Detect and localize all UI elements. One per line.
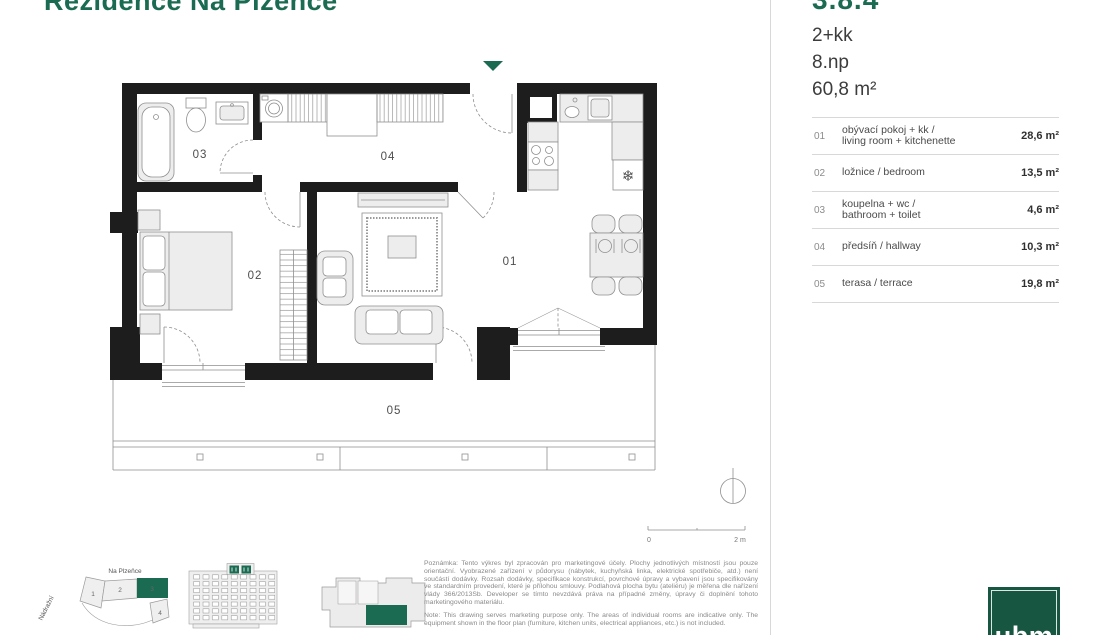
scale-max: 2 m — [734, 537, 746, 544]
toilet — [186, 98, 206, 132]
brochure-page: Rezidence Na Plzeňce 3.8.4 2+kk 8.np 60,… — [0, 0, 1111, 635]
floor-plan: ❄ — [105, 50, 765, 550]
label-terrace: 05 — [387, 405, 402, 417]
bedroom-french-window — [162, 327, 245, 387]
highlighted-unit-footprint — [366, 605, 407, 625]
room-area: 19,8 m² — [1021, 278, 1059, 290]
scale-bar: 0 2 m — [647, 526, 746, 544]
room-number: 05 — [814, 279, 842, 290]
room-name: koupelna + wc / bathroom + toilet — [842, 195, 1027, 226]
bathtub — [138, 103, 174, 181]
unit-floor: 8.np — [812, 49, 876, 76]
stove — [528, 122, 558, 190]
floor-location-plan — [315, 570, 431, 632]
note-czech: Poznámka: Tento výkres byl zpracován pro… — [424, 560, 758, 607]
disclaimer-notes: Poznámka: Tento výkres byl zpracován pro… — [424, 560, 758, 632]
svg-text:2: 2 — [118, 587, 122, 594]
room-number: 03 — [814, 205, 842, 216]
table-row: 02 ložnice / bedroom 13,5 m² — [812, 155, 1059, 192]
room-area: 4,6 m² — [1027, 204, 1059, 216]
room-area: 28,6 m² — [1021, 130, 1059, 142]
room-number: 04 — [814, 242, 842, 253]
bed — [140, 232, 232, 310]
nightstand — [138, 210, 160, 230]
site-map: Na Plzeňce Nádražní 1 2 3 4 — [36, 556, 174, 635]
washing-machine — [260, 94, 288, 122]
armchair — [317, 251, 353, 305]
sideboard — [358, 193, 448, 207]
bathroom-fixtures — [138, 98, 248, 181]
fridge-icon: ❄ — [613, 160, 643, 190]
rug — [362, 213, 442, 296]
entrance-arrow-icon — [483, 61, 503, 71]
bedroom-wardrobe — [280, 250, 307, 360]
svg-text:1: 1 — [91, 591, 95, 598]
unit-total-area: 60,8 m² — [812, 76, 876, 103]
highlighted-unit-window — [230, 566, 240, 574]
highlighted-unit-window — [242, 566, 252, 574]
table-row: 05 terasa / terrace 19,8 m² — [812, 266, 1059, 303]
room-number: 01 — [814, 131, 842, 142]
unit-layout: 2+kk — [812, 22, 876, 49]
washbasin — [216, 102, 248, 124]
room-area: 13,5 m² — [1021, 167, 1059, 179]
dining-set — [590, 215, 643, 295]
note-english: Note: This drawing serves marketing purp… — [424, 612, 758, 628]
shaft — [530, 97, 552, 118]
svg-text:4: 4 — [158, 610, 162, 617]
label-bedroom: 02 — [248, 270, 263, 282]
table-row: 01 obývací pokoj + kk / living room + ki… — [812, 118, 1059, 155]
bedroom-furniture — [138, 210, 307, 360]
svg-text:3: 3 — [150, 586, 154, 593]
room-area: 10,3 m² — [1021, 241, 1059, 253]
unit-number: 3.8.4 — [812, 0, 879, 15]
room-table: 01 obývací pokoj + kk / living room + ki… — [812, 117, 1059, 303]
scale-zero: 0 — [647, 537, 651, 544]
table-row: 03 koupelna + wc / bathroom + toilet 4,6… — [812, 192, 1059, 229]
coffee-table — [388, 236, 416, 258]
project-title: Rezidence Na Plzeňce — [44, 0, 338, 16]
building-elevation — [183, 560, 288, 634]
table-row: 04 předsíň / hallway 10,3 m² — [812, 229, 1059, 266]
living-furniture — [317, 193, 643, 344]
label-living: 01 — [503, 256, 518, 268]
room-name: předsíň / hallway — [842, 237, 1021, 257]
svg-text:❄: ❄ — [622, 168, 635, 185]
label-hallway: 04 — [381, 151, 396, 163]
nightstand — [140, 314, 160, 334]
room-name: terasa / terrace — [842, 274, 1021, 294]
street-name-left: Nádražní — [38, 595, 56, 622]
room-number: 02 — [814, 168, 842, 179]
vertical-divider — [770, 0, 771, 635]
room-name: ložnice / bedroom — [842, 163, 1021, 183]
label-bathroom: 03 — [193, 149, 208, 161]
hallway-fixtures — [260, 94, 443, 136]
north-indicator-icon — [721, 468, 746, 504]
unit-specs: 2+kk 8.np 60,8 m² — [812, 22, 876, 103]
sofa — [355, 306, 443, 344]
street-name-top: Na Plzeňce — [108, 568, 142, 575]
hall-wardrobe — [288, 94, 443, 136]
logo-text: ubm — [988, 623, 1060, 635]
room-name: obývací pokoj + kk / living room + kitch… — [842, 121, 1021, 152]
developer-logo: ubm — [988, 587, 1060, 635]
living-window — [513, 308, 605, 351]
entrance-door — [473, 94, 512, 133]
